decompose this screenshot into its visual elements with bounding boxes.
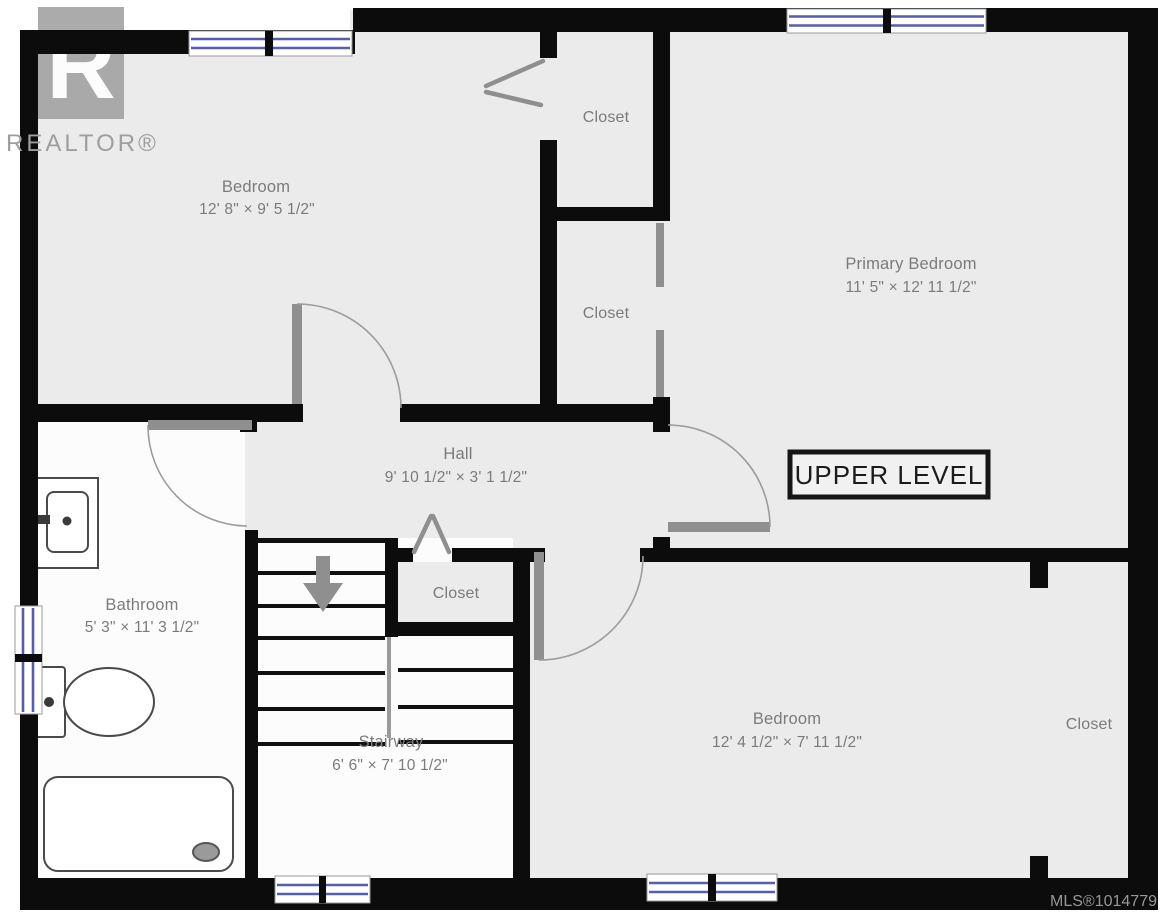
wall-bathroom-stair xyxy=(245,530,258,880)
wall-stairclt-top-left xyxy=(390,548,413,562)
sliding-door-panel xyxy=(656,330,664,397)
room-label-closet-lower-right: Closet xyxy=(1066,716,1113,733)
room-label-hall: Hall xyxy=(443,445,472,463)
wall-bedroom1-bottom-right xyxy=(400,404,670,422)
room-dims-stairway: 6' 6" × 7' 10 1/2" xyxy=(332,757,448,774)
room-label-primary-bedroom: Primary Bedroom xyxy=(845,255,976,273)
wall-stairclt-bottom xyxy=(390,622,530,636)
floor-areas xyxy=(25,10,1140,882)
room-label-closet-top: Closet xyxy=(583,109,630,126)
wall-stair-bedroom2 xyxy=(513,548,530,880)
room-dims-hall: 9' 10 1/2" × 3' 1 1/2" xyxy=(385,469,527,486)
stair-divider xyxy=(387,636,391,738)
wall-left xyxy=(20,30,38,882)
wall-bedroom1-bottom-left xyxy=(20,404,303,422)
sink-icon xyxy=(33,478,98,568)
level-label-text: UPPER LEVEL xyxy=(795,460,984,490)
room-dims-primary-bedroom: 11' 5" × 12' 11 1/2" xyxy=(845,279,976,296)
room-label-bedroom-lower: Bedroom xyxy=(753,710,821,728)
room-dims-bedroom-lower: 12' 4 1/2" × 7' 11 1/2" xyxy=(712,734,862,751)
stair-tread xyxy=(258,671,385,675)
toilet-icon xyxy=(34,667,154,737)
floorplan-svg: R xyxy=(0,0,1162,914)
wall-closet4-stub-bottom xyxy=(1030,856,1048,880)
stair-tread xyxy=(258,707,385,711)
wall-bottom xyxy=(20,878,1158,910)
wall-hall-bedroom2 xyxy=(640,548,1130,562)
level-label-box: UPPER LEVEL xyxy=(790,452,988,497)
window-bottom-middle xyxy=(647,874,777,901)
wall-closet1-left-lower xyxy=(540,140,557,422)
wall-closet1-left-upper xyxy=(540,30,557,58)
room-label-closet-middle: Closet xyxy=(583,305,630,322)
wall-top-right xyxy=(353,8,1132,32)
room-label-closet-stairs: Closet xyxy=(433,585,480,602)
window-top-right xyxy=(787,9,986,33)
stair-tread xyxy=(258,636,385,640)
wall-closet1-right xyxy=(653,30,670,207)
room-label-bedroom-upper-left: Bedroom xyxy=(222,178,290,196)
stair-tread xyxy=(398,668,513,672)
floorplan-page: R xyxy=(0,0,1162,914)
wall-closet4-stub-top xyxy=(1030,562,1048,588)
window-left xyxy=(15,606,42,714)
sliding-door-panel xyxy=(656,223,664,287)
wall-right xyxy=(1128,8,1158,910)
window-top-left xyxy=(189,31,352,56)
bathtub-icon xyxy=(44,777,233,871)
room-dims-bathroom: 5' 3" × 11' 3 1/2" xyxy=(85,619,200,636)
room-dims-bedroom-upper-left: 12' 8" × 9' 5 1/2" xyxy=(199,201,315,218)
realtor-wordmark: REALTOR® xyxy=(6,130,159,157)
room-label-bathroom: Bathroom xyxy=(105,596,178,614)
wall-closet-divider xyxy=(540,207,670,221)
room-label-stairway: Stairway xyxy=(359,733,424,751)
mls-number: MLS®1014779 xyxy=(1050,893,1157,910)
realtor-logo: R xyxy=(38,7,124,119)
stair-tread xyxy=(258,538,385,543)
realtor-logo-letter: R xyxy=(46,12,115,119)
stair-tread xyxy=(398,705,513,709)
window-bottom-left xyxy=(275,876,370,903)
